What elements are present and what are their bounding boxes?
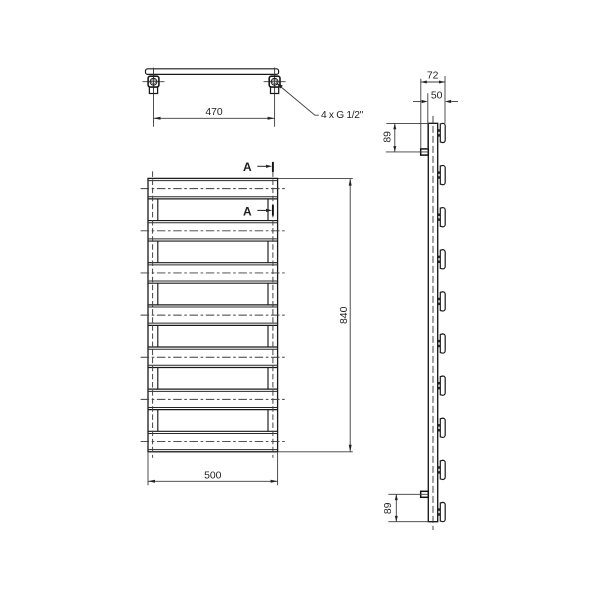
svg-text:89: 89 xyxy=(383,502,394,514)
svg-text:A: A xyxy=(243,204,252,218)
svg-text:840: 840 xyxy=(339,306,350,324)
svg-text:500: 500 xyxy=(204,470,222,481)
svg-text:4 x G 1/2": 4 x G 1/2" xyxy=(321,110,364,121)
svg-text:470: 470 xyxy=(205,107,223,118)
svg-text:50: 50 xyxy=(431,91,443,102)
svg-text:A: A xyxy=(243,160,252,174)
svg-text:89: 89 xyxy=(383,131,394,143)
svg-text:72: 72 xyxy=(427,70,439,81)
